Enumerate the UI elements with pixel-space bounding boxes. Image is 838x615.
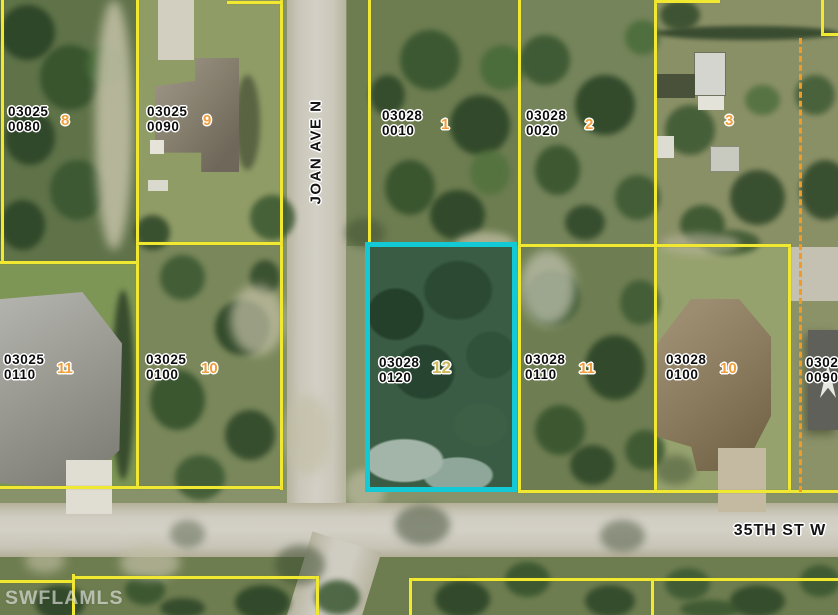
lot-number: 10 xyxy=(720,360,737,377)
parcel-boundary-line xyxy=(227,1,282,4)
vegetation-blob xyxy=(435,580,490,615)
parcel-boundary-line xyxy=(788,246,791,493)
driveway-parcel-9 xyxy=(158,0,194,60)
lot-number: 11 xyxy=(57,360,73,377)
vegetation-blob xyxy=(535,145,580,195)
porch-pad xyxy=(150,140,164,154)
parcel-boundary-line xyxy=(651,578,654,615)
vegetation-blob xyxy=(235,585,290,615)
parcel-label: 03025 0080 xyxy=(8,104,49,134)
sand-patch xyxy=(520,250,575,325)
parcel-label: 03028 0020 xyxy=(526,108,567,138)
parcel-id-line: 03028 xyxy=(382,108,423,123)
vegetation-blob xyxy=(160,598,205,615)
shed xyxy=(710,146,740,172)
parcel-boundary-line xyxy=(1,0,4,263)
parcel-id-line: 03025 xyxy=(8,104,49,119)
concrete-pad-9r xyxy=(790,247,838,301)
parcel-label: 03028 0100 xyxy=(666,352,707,382)
parcel-id-line: 0110 xyxy=(525,367,566,382)
vegetation-blob xyxy=(570,445,615,485)
sand-patch xyxy=(230,285,285,355)
street-label-joan-ave-n: JOAN AVE N xyxy=(308,99,325,204)
parcel-label: 03028 0110 xyxy=(525,352,566,382)
lot-number: 8 xyxy=(61,112,69,129)
vegetation-blob xyxy=(315,580,360,615)
vegetation-blob xyxy=(575,75,635,135)
tree-shadow-blob xyxy=(395,505,450,545)
vegetation-blob xyxy=(565,205,605,240)
parcel-boundary-line xyxy=(518,490,838,493)
tree-shadow-blob xyxy=(170,520,205,548)
sand-patch xyxy=(285,395,330,475)
vegetation-blob xyxy=(175,455,225,500)
parcel-label: 03028 0010 xyxy=(382,108,423,138)
sand-patch xyxy=(120,545,180,580)
lot-number: 10 xyxy=(201,360,218,377)
ac-pad xyxy=(148,180,168,191)
parcel-label-highlighted: 03028 0120 xyxy=(379,355,420,385)
parcel-id-line: 03028 xyxy=(666,352,707,367)
sand-patch xyxy=(25,548,65,573)
parcel-label: 03025 0110 xyxy=(4,352,45,382)
parcel-id-line: 03025 xyxy=(4,352,45,367)
junk-pile xyxy=(655,74,695,98)
parcel-boundary-line xyxy=(136,242,282,245)
sand-patch xyxy=(95,0,133,250)
lot-number: 1 xyxy=(441,116,449,133)
mls-watermark: SWFLAMLS xyxy=(5,587,123,610)
lot-number: 2 xyxy=(585,116,593,133)
vegetation-blob xyxy=(520,35,570,85)
parcel-label-clipped: 03028 0090 xyxy=(806,355,838,385)
parcel-boundary-line xyxy=(409,578,412,615)
vegetation-blob xyxy=(800,565,838,597)
parcel-boundary-line xyxy=(409,578,838,581)
lot-number-highlighted: 12 xyxy=(432,358,451,378)
vegetation-blob xyxy=(0,200,45,250)
parcel-id-line: 0010 xyxy=(382,123,423,138)
vegetation-blob xyxy=(225,410,275,460)
vegetation-blob xyxy=(680,600,740,615)
parcel-id-line: 03025 xyxy=(147,104,188,119)
vegetation-blob xyxy=(385,160,435,215)
parcel-id-line: 0090 xyxy=(147,119,188,134)
white-object xyxy=(656,136,674,158)
parcel-boundary-line xyxy=(655,0,720,3)
vegetation-blob xyxy=(665,568,710,600)
vegetation-blob xyxy=(400,30,460,90)
tree-shadow-blob xyxy=(600,520,645,552)
parcel-id-line: 03025 xyxy=(146,352,187,367)
parcel-id-line: 03028 xyxy=(379,355,420,370)
vegetation-blob xyxy=(535,405,585,455)
parcel-boundary-line xyxy=(0,580,75,583)
lot-number: 9 xyxy=(203,112,211,129)
vegetation-blob xyxy=(585,585,635,615)
vegetation-blob xyxy=(250,195,295,240)
white-vehicle xyxy=(698,96,724,110)
vegetation-blob xyxy=(655,26,838,40)
parcel-boundary-line xyxy=(368,0,371,246)
parcel-boundary-line xyxy=(0,486,281,489)
trailer xyxy=(694,52,726,96)
parcel-label: 03025 0090 xyxy=(147,104,188,134)
driveway-parcel-10r xyxy=(718,448,766,512)
parcel-boundary-line xyxy=(316,576,319,615)
parcel-id-line: 03028 xyxy=(526,108,567,123)
parcel-id-line: 0080 xyxy=(8,119,49,134)
aerial-parcel-map: 03025 0080 8 03025 0090 9 03028 0010 1 0… xyxy=(0,0,838,615)
vegetation-blob xyxy=(450,95,510,155)
parcel-id-line: 03028 xyxy=(525,352,566,367)
parcel-id-line: 0020 xyxy=(526,123,567,138)
parcel-boundary-line xyxy=(73,576,319,579)
parcel-id-line: 0120 xyxy=(379,370,420,385)
parcel-boundary-line xyxy=(518,244,791,247)
tree-shadow-blob xyxy=(655,455,695,485)
parcel-boundary-line xyxy=(0,261,137,264)
lot-number: 3 xyxy=(725,112,733,129)
parcel-id-line: 03028 xyxy=(806,355,838,370)
vegetation-blob xyxy=(730,170,785,225)
parcel-boundary-line xyxy=(821,33,838,36)
vegetation-blob xyxy=(160,255,205,300)
parcel-id-line: 0100 xyxy=(666,367,707,382)
vegetation-blob xyxy=(745,85,780,115)
lot-number: 11 xyxy=(579,360,595,377)
dashed-easement-line xyxy=(799,38,802,492)
parcel-label: 03025 0100 xyxy=(146,352,187,382)
parcel-boundary-line xyxy=(821,0,824,35)
parcel-id-line: 0090 xyxy=(806,370,838,385)
parcel-id-line: 0100 xyxy=(146,367,187,382)
vegetation-blob xyxy=(0,5,55,60)
vegetation-blob xyxy=(470,150,510,195)
street-label-35th-st-w: 35TH ST W xyxy=(734,522,827,540)
parcel-id-line: 0110 xyxy=(4,367,45,382)
vegetation-blob xyxy=(660,0,700,30)
parcel-boundary-line xyxy=(280,0,283,490)
